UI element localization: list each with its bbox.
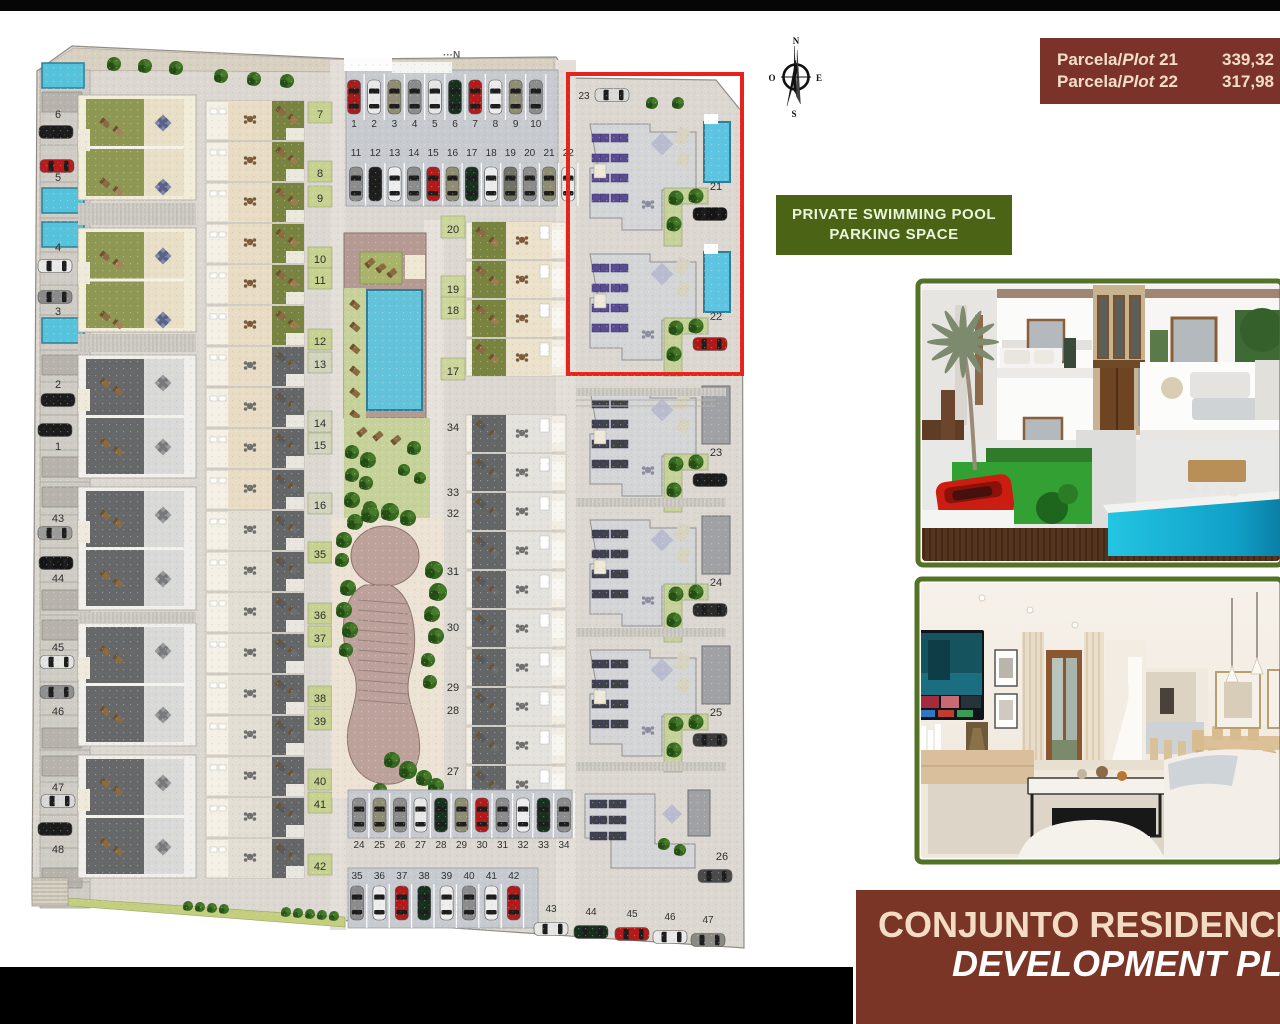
- svg-text:S: S: [791, 109, 796, 119]
- svg-text:CONJUNTO RESIDENCIAL: CONJUNTO RESIDENCIAL: [878, 904, 1280, 945]
- svg-text:PARKING SPACE: PARKING SPACE: [829, 226, 958, 243]
- svg-text:N: N: [793, 36, 800, 46]
- svg-text:E: E: [816, 73, 822, 83]
- svg-text:PRIVATE SWIMMING POOL: PRIVATE SWIMMING POOL: [792, 206, 996, 223]
- svg-text:317,98: 317,98: [1222, 72, 1274, 91]
- svg-text:Parcela/Plot 22: Parcela/Plot 22: [1057, 72, 1178, 91]
- svg-text:339,32: 339,32: [1222, 50, 1274, 69]
- svg-text:Parcela/Plot 21: Parcela/Plot 21: [1057, 50, 1178, 69]
- svg-text:O: O: [768, 73, 775, 83]
- svg-text:DEVELOPMENT PLAN: DEVELOPMENT PLAN: [952, 943, 1280, 984]
